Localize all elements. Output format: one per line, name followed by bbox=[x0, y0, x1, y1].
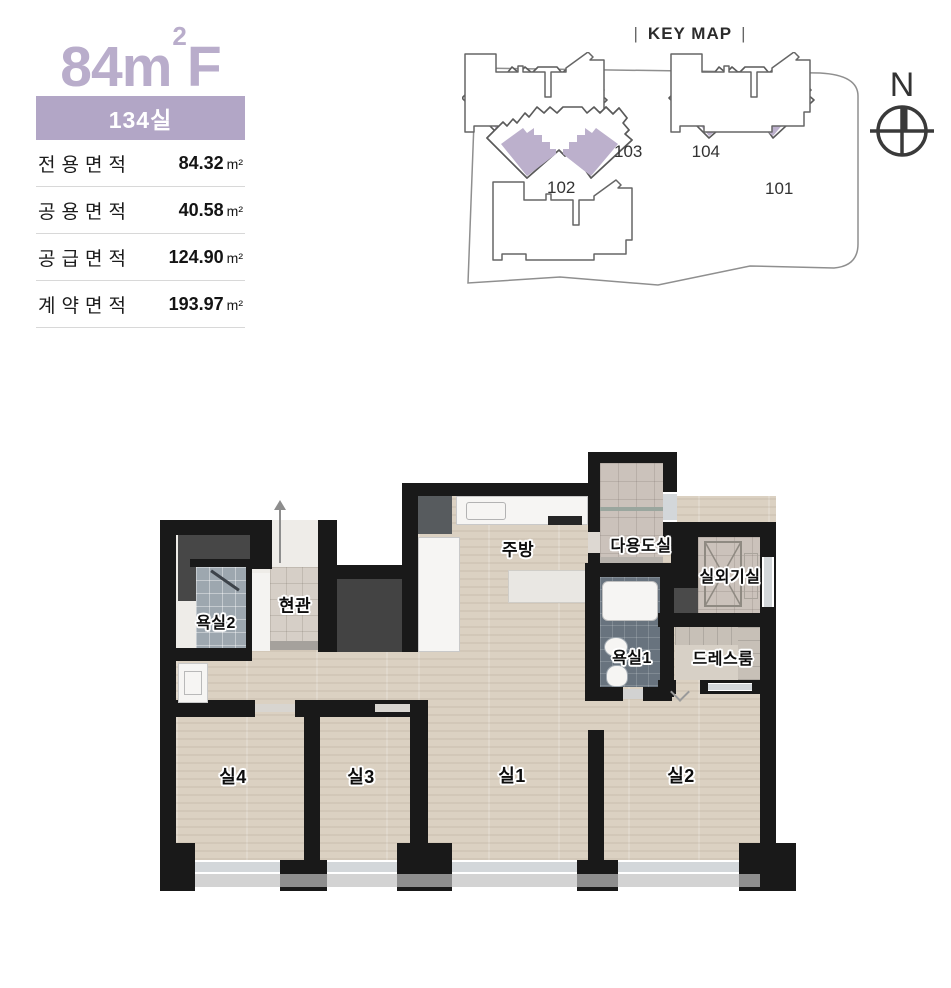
bath1-door-threshold bbox=[623, 689, 643, 699]
room-label-room1: 실1 bbox=[498, 762, 526, 788]
floor-plan-page: 84m2F 134실 전용면적 84.32m² 공용면적 40.58m² 공급면… bbox=[0, 0, 951, 988]
wall-left-outer bbox=[160, 520, 176, 860]
room-label-bath1: 욕실1 bbox=[612, 644, 652, 668]
refrigerator-nook bbox=[418, 496, 452, 534]
unit-type-title: 84m2F bbox=[36, 22, 245, 94]
unit-info-panel: 84m2F 134실 전용면적 84.32m² 공용면적 40.58m² 공급면… bbox=[36, 22, 245, 328]
room-label-kitchen: 주방 bbox=[502, 536, 534, 561]
room1-window bbox=[452, 860, 577, 874]
building-label-103: 103 bbox=[614, 142, 642, 161]
dressroom-window bbox=[708, 683, 752, 691]
wall-segment bbox=[250, 520, 272, 569]
spec-row-supply-area: 공급면적 124.90m² bbox=[36, 234, 245, 281]
pantry-cabinet bbox=[418, 537, 460, 652]
floor-plan: 주방 다용도실 실외기실 욕실2 현관 욕실1 드레스룸 실4 실3 실1 실2 bbox=[160, 445, 800, 895]
spec-value: 40.58m² bbox=[179, 200, 243, 221]
room-label-room3: 실3 bbox=[347, 763, 375, 789]
room3-window bbox=[327, 860, 397, 874]
utility-shelf-line bbox=[600, 507, 663, 511]
wall-utility-left-upper bbox=[588, 452, 600, 532]
room-label-dressroom: 드레스룸 bbox=[693, 645, 754, 669]
cooktop bbox=[548, 516, 582, 525]
keymap-title-bar-left: | bbox=[634, 24, 639, 43]
keymap-title-bar-right: | bbox=[741, 24, 746, 43]
room-label-room2: 실2 bbox=[667, 762, 695, 788]
spec-row-contract-area: 계약면적 193.97m² bbox=[36, 281, 245, 328]
utility-doorway bbox=[588, 532, 600, 553]
wall-pillar bbox=[160, 843, 195, 891]
spec-unit: m² bbox=[227, 203, 243, 219]
building-101-shape bbox=[671, 52, 810, 132]
spec-label: 공급면적 bbox=[38, 244, 132, 271]
spec-number: 193.97 bbox=[169, 294, 224, 314]
keymap-title: |KEY MAP| bbox=[560, 24, 820, 44]
room-label-outdoor-unit: 실외기실 bbox=[700, 563, 761, 587]
spec-unit: m² bbox=[227, 156, 243, 172]
wall-bath1-left bbox=[585, 563, 600, 701]
bath2-door bbox=[252, 573, 270, 651]
wall-kitchen-left bbox=[402, 483, 418, 652]
room4-door-threshold bbox=[255, 704, 295, 712]
bathtub bbox=[602, 581, 658, 621]
outdoor-room-window bbox=[762, 557, 774, 607]
entrance-arrow-line bbox=[279, 509, 281, 563]
spec-value: 193.97m² bbox=[169, 294, 243, 315]
spec-number: 40.58 bbox=[179, 200, 224, 220]
room-label-entrance: 현관 bbox=[279, 592, 311, 617]
wall-bath1-bottom-left bbox=[585, 687, 623, 701]
room-label-bath2: 욕실2 bbox=[196, 609, 236, 633]
kitchen-island bbox=[508, 570, 587, 603]
wall-dress-top bbox=[658, 613, 776, 627]
room-label-room4: 실4 bbox=[219, 763, 247, 789]
spec-unit: m² bbox=[227, 250, 243, 266]
wall-divider-room3-room1 bbox=[410, 700, 428, 860]
room3-door-threshold bbox=[375, 704, 410, 712]
kitchen-sink bbox=[466, 502, 506, 520]
wall-bath1-dress bbox=[660, 577, 674, 697]
compass-north-label: N bbox=[890, 66, 915, 104]
compass: N bbox=[870, 66, 934, 156]
entrance-arrow-head bbox=[274, 500, 286, 510]
keymap-diagram: 103 104 102 101 N bbox=[462, 52, 937, 302]
spec-number: 84.32 bbox=[179, 153, 224, 173]
spec-label: 공용면적 bbox=[38, 197, 132, 224]
spec-unit: m² bbox=[227, 297, 243, 313]
wall-bath2-bottom bbox=[176, 648, 252, 661]
spec-label: 계약면적 bbox=[38, 291, 132, 318]
room-count-badge: 134실 bbox=[36, 96, 245, 140]
wall-segment bbox=[190, 559, 252, 567]
room2-window bbox=[618, 860, 739, 874]
spec-number: 124.90 bbox=[169, 247, 224, 267]
wall-kitchen-top bbox=[402, 483, 600, 496]
entrance-step bbox=[270, 641, 318, 650]
wall-outdoor-room-left bbox=[671, 530, 698, 588]
unit-title-base: 84m bbox=[60, 35, 171, 99]
unit-title-superscript: 2 bbox=[172, 1, 185, 71]
wall-divider-room1-room2 bbox=[588, 730, 604, 860]
room4-window bbox=[195, 860, 280, 874]
wall-divider-room4-room3 bbox=[304, 717, 320, 860]
toilet bbox=[606, 665, 628, 687]
wall-utility-right bbox=[663, 452, 677, 492]
hall-sink-basin bbox=[184, 671, 202, 695]
spec-row-common-area: 공용면적 40.58m² bbox=[36, 187, 245, 234]
wall-entry-right bbox=[318, 520, 337, 652]
spec-label: 전용면적 bbox=[38, 150, 132, 177]
floor-hall-wood bbox=[176, 648, 418, 860]
room-label-utility: 다용도실 bbox=[611, 532, 672, 556]
building-label-104: 104 bbox=[692, 142, 720, 161]
building-label-101: 101 bbox=[765, 179, 793, 198]
balcony-ledge bbox=[195, 874, 760, 887]
spec-row-exclusive-area: 전용면적 84.32m² bbox=[36, 140, 245, 187]
keymap-title-text: KEY MAP bbox=[648, 24, 732, 43]
spec-value: 124.90m² bbox=[169, 247, 243, 268]
building-label-102: 102 bbox=[547, 178, 575, 197]
spec-value: 84.32m² bbox=[179, 153, 243, 174]
unit-title-suffix: F bbox=[187, 35, 221, 99]
utility-window bbox=[663, 492, 677, 522]
